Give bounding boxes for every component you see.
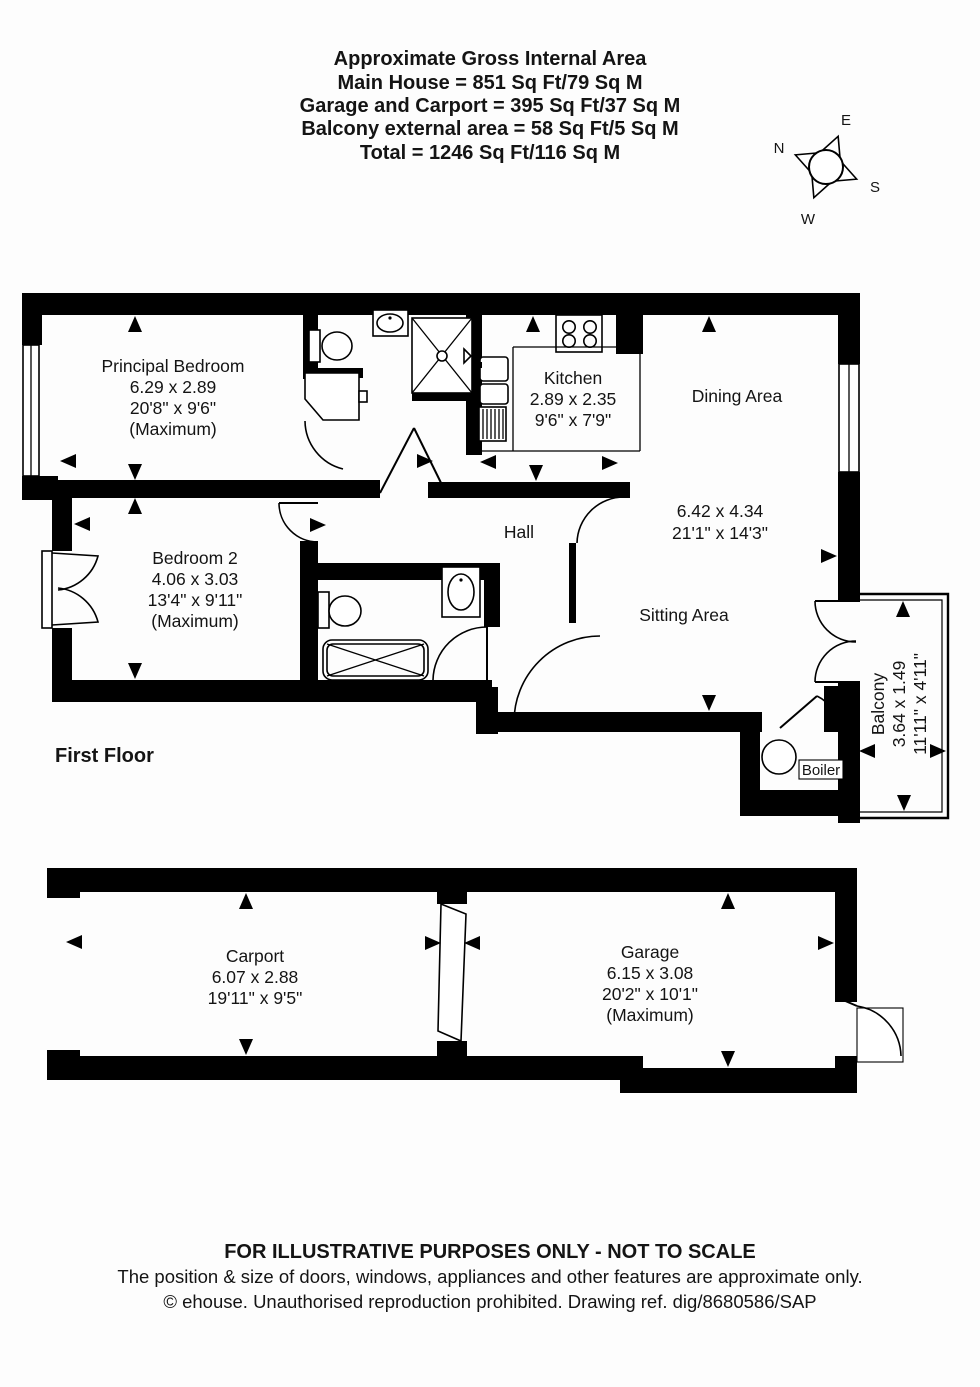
reception-metric: 6.42 x 4.34 <box>677 501 764 521</box>
kitchen-imperial: 9'6" x 7'9" <box>535 410 612 430</box>
room-label-principal-bedroom: Principal Bedroom 6.29 x 2.89 20'8" x 9'… <box>102 356 245 439</box>
sitting-area-label: Sitting Area <box>639 605 729 625</box>
compass-e-label: E <box>841 112 851 129</box>
door-arc <box>305 421 343 469</box>
header-balcony: Balcony external area = 58 Sq Ft/5 Sq M <box>301 118 678 140</box>
carport-name: Carport <box>226 946 284 966</box>
floorplan-svg: Approximate Gross Internal Area Main Hou… <box>0 0 980 1387</box>
floorplan-page: Approximate Gross Internal Area Main Hou… <box>0 0 980 1387</box>
footer-not-to-scale: FOR ILLUSTRATIVE PURPOSES ONLY - NOT TO … <box>224 1241 756 1263</box>
garage-metric: 6.15 x 3.08 <box>607 963 694 983</box>
room-label-reception-dims: 6.42 x 4.34 21'1" x 14'3" <box>672 501 768 543</box>
bedroom-2-name: Bedroom 2 <box>152 548 238 568</box>
toilet-icon <box>318 592 361 628</box>
carport-metric: 6.07 x 2.88 <box>212 967 299 987</box>
basin-icon <box>442 567 480 617</box>
garage-imperial: 20'2" x 10'1" <box>602 984 698 1004</box>
principal-bedroom-note: (Maximum) <box>129 419 217 439</box>
hall-label: Hall <box>504 522 534 542</box>
bedroom-2-imperial: 13'4" x 9'11" <box>148 590 243 610</box>
header-garage-carport: Garage and Carport = 395 Sq Ft/37 Sq M <box>300 95 681 117</box>
footer-approximate-note: The position & size of doors, windows, a… <box>117 1266 862 1287</box>
window <box>23 345 39 476</box>
room-label-bedroom-2: Bedroom 2 4.06 x 3.03 13'4" x 9'11" (Max… <box>148 548 243 631</box>
garage-door <box>843 1000 903 1062</box>
bedroom-2-note: (Maximum) <box>151 611 239 631</box>
carport-garage-divider-door <box>438 904 466 1041</box>
header-title: Approximate Gross Internal Area <box>334 48 648 70</box>
wardrobe-icon <box>305 373 367 420</box>
area-summary: Approximate Gross Internal Area Main Hou… <box>300 48 681 164</box>
garage-note: (Maximum) <box>606 1005 694 1025</box>
principal-bedroom-imperial: 20'8" x 9'6" <box>130 398 216 418</box>
header-main-house: Main House = 851 Sq Ft/79 Sq M <box>337 72 642 94</box>
balcony-name: Balcony <box>868 673 888 736</box>
basin-icon <box>373 310 408 336</box>
dining-area-label: Dining Area <box>692 386 783 406</box>
kitchen-metric: 2.89 x 2.35 <box>530 389 617 409</box>
footer-disclaimer: FOR ILLUSTRATIVE PURPOSES ONLY - NOT TO … <box>117 1241 862 1312</box>
shower-icon <box>412 318 472 393</box>
room-label-balcony: Balcony 3.64 x 1.49 11'11" x 4'11" <box>868 653 930 755</box>
compass-n-label: N <box>774 140 785 157</box>
french-door <box>42 551 98 628</box>
boiler-label: Boiler <box>802 762 840 779</box>
balcony-metric: 3.64 x 1.49 <box>889 661 909 748</box>
compass-s-label: S <box>870 179 880 196</box>
principal-bedroom-metric: 6.29 x 2.89 <box>130 377 217 397</box>
door-arc <box>514 636 600 722</box>
principal-bedroom-name: Principal Bedroom <box>102 356 245 376</box>
compass-icon: N E S W <box>774 112 880 228</box>
door-arc <box>577 496 624 543</box>
footer-copyright: © ehouse. Unauthorised reproduction proh… <box>163 1291 816 1312</box>
toilet-icon <box>309 330 352 362</box>
garage-name: Garage <box>621 942 679 962</box>
carport-imperial: 19'11" x 9'5" <box>208 988 303 1008</box>
compass-w-label: W <box>801 211 816 228</box>
door-arc <box>815 601 856 642</box>
bedroom-2-metric: 4.06 x 3.03 <box>152 569 239 589</box>
door-arc <box>815 641 856 682</box>
reception-imperial: 21'1" x 14'3" <box>672 523 768 543</box>
balcony-imperial: 11'11" x 4'11" <box>910 653 930 755</box>
floor-title: First Floor <box>55 745 154 767</box>
room-label-kitchen: Kitchen 2.89 x 2.35 9'6" x 7'9" <box>530 368 617 430</box>
room-label-garage: Garage 6.15 x 3.08 20'2" x 10'1" (Maximu… <box>602 942 698 1025</box>
door-arc <box>433 627 487 681</box>
window <box>839 364 859 472</box>
bathtub-icon <box>323 640 428 680</box>
room-label-carport: Carport 6.07 x 2.88 19'11" x 9'5" <box>208 946 303 1008</box>
header-total: Total = 1246 Sq Ft/116 Sq M <box>360 142 620 164</box>
kitchen-name: Kitchen <box>544 368 602 388</box>
